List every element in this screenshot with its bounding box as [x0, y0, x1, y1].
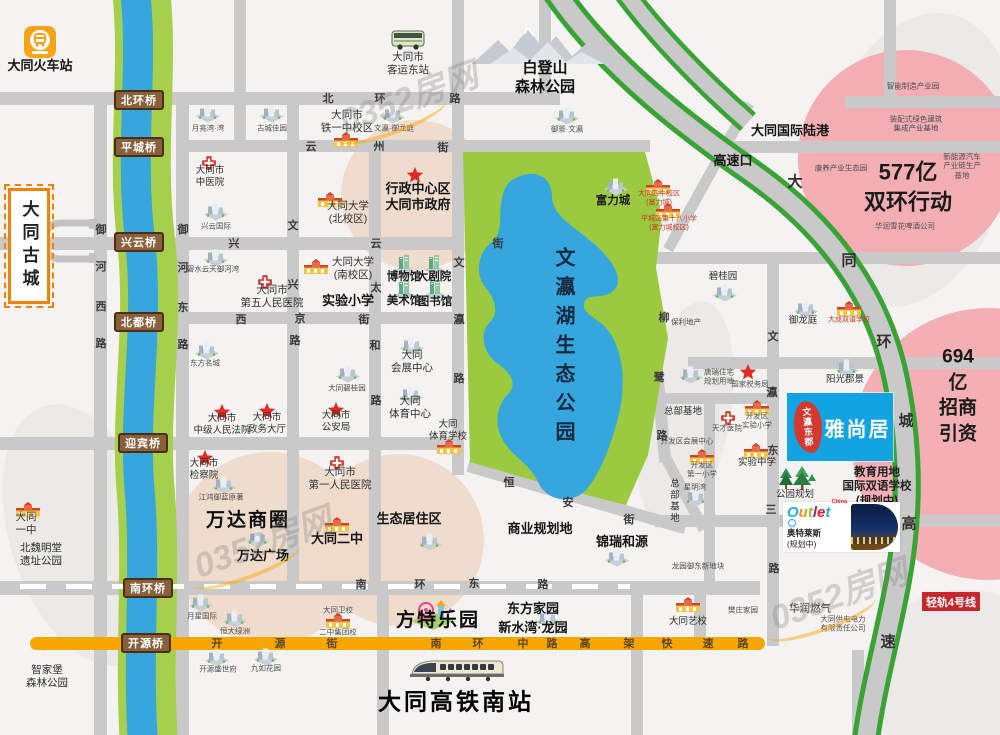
map-label: 碧桂园	[709, 271, 738, 283]
map-label: 东方家园	[507, 601, 559, 617]
map-label: 大成双语学校	[828, 317, 870, 326]
residential-icon	[417, 532, 443, 551]
map-label: 商业规划地	[507, 521, 572, 537]
street-name-char: 路	[769, 560, 780, 576]
bridge-sign: 北环桥	[114, 90, 164, 110]
residential-icon	[188, 593, 214, 612]
residential-icon	[554, 106, 580, 125]
train-icon	[406, 654, 506, 682]
school-icon	[303, 259, 329, 275]
street-name-char: 开	[212, 635, 223, 651]
residential-icon	[194, 341, 220, 360]
map-label: 大同市 第一人民医院	[309, 466, 372, 492]
map-label: 唐瑞住宅 规划用地	[704, 368, 734, 387]
bridge-sign: 开源桥	[121, 633, 171, 653]
map-label: 大同大学 (北校区)	[327, 200, 369, 226]
highway-name-char: 环	[876, 331, 891, 352]
outlet-cn-label: 奥特莱斯	[787, 527, 849, 539]
map-label: 碧水云天御河湾	[187, 264, 240, 273]
bridge-sign: 南环桥	[123, 578, 173, 598]
map-label: 美术馆	[387, 294, 422, 308]
map: 北环桥平城桥兴云桥北都桥迎宾桥南环桥开源桥 北环路云州街兴云街西京街御河西路御河…	[0, 0, 1000, 735]
bus-icon	[391, 29, 425, 51]
school-icon	[675, 597, 701, 613]
map-label: 大同四中校区 (富力城)	[638, 190, 680, 208]
bridge-sign: 迎宾桥	[118, 433, 168, 453]
street-name-char: 街	[624, 511, 635, 527]
map-label: 实验小学	[322, 293, 374, 309]
street-name-char: 东	[768, 442, 779, 458]
residential-icon	[203, 202, 229, 221]
residential-icon	[195, 104, 221, 123]
map-label: 总部基地	[667, 478, 679, 524]
street-name-char: 环	[415, 576, 426, 592]
outlet-status-label: (规划中)	[787, 539, 849, 550]
map-label: 大同 体育中心	[389, 395, 431, 421]
map-label: 694亿 招商引资	[937, 345, 979, 448]
map-label: 开发区 第一小学	[687, 461, 717, 480]
residential-icon	[603, 177, 629, 196]
map-label: 江鸿御蓝原著	[199, 492, 244, 501]
map-label: 大同碧桂园	[328, 383, 366, 392]
map-label: 康养产业生态园	[815, 163, 868, 172]
map-label: 实验中学	[738, 457, 776, 469]
street-name-char: 路	[547, 635, 558, 651]
map-label: 大同大学 (南校区)	[332, 256, 374, 282]
street-name-char: 恒	[504, 474, 515, 490]
train-station-icon	[23, 25, 57, 59]
map-label: 北魏明堂 遗址公园	[20, 542, 62, 568]
map-label: 保利地产	[671, 317, 701, 326]
map-label: 樊庄家园	[728, 605, 758, 614]
outlet-brand: ChinaOutlet	[787, 505, 849, 520]
map-label: 方特乐园	[396, 609, 480, 633]
street-name-char: 环	[473, 635, 484, 651]
street-name-char: 路	[96, 335, 107, 351]
map-label: 国家税务局	[731, 379, 769, 388]
yashangju-seal-logo: 文瀛东郡	[792, 400, 824, 454]
bridge-sign: 兴云桥	[114, 232, 164, 252]
street-name-char: 和	[370, 337, 381, 353]
street-name-char: 街	[359, 311, 370, 327]
street-name-char: 路	[290, 332, 301, 348]
map-label: 图书馆	[418, 295, 453, 309]
map-label: 锦瑞和源	[596, 534, 648, 550]
map-label: 御景·文瀛	[551, 124, 584, 133]
street-name-char: 南	[431, 635, 442, 651]
map-label: 大同 体育学校	[429, 419, 467, 443]
residential-icon	[712, 283, 738, 302]
street-name-char: 街	[493, 235, 504, 251]
highway-name-char: 速	[880, 631, 895, 652]
map-label: 龙园御东新地块	[672, 561, 725, 570]
map-label: 行政中心区 大同市政府	[385, 181, 450, 214]
street-name-char: 京	[295, 310, 306, 326]
map-label: 大同高铁南站	[378, 688, 534, 717]
street-name-char: 兴	[229, 235, 240, 251]
map-label: 二中集团校	[319, 627, 357, 636]
map-label: 大同火车站	[7, 58, 72, 74]
map-label: 九如花园	[251, 663, 281, 672]
ancient-city-box: 大同古城	[8, 188, 50, 304]
map-label: 总部基地	[664, 406, 702, 418]
street-name-char: 路	[538, 576, 549, 592]
bridge-sign: 北都桥	[114, 312, 164, 332]
map-label: 富力城	[596, 194, 631, 208]
map-label: 公园规划	[776, 489, 814, 501]
lake-park-name: 文瀛湖生态公园	[549, 247, 578, 450]
map-label: 大同 一中	[16, 511, 37, 537]
map-label: 智能制造产业园	[887, 81, 940, 90]
map-label: 智家堡 森林公园	[26, 664, 68, 690]
map-label: 新能源汽车产业链生产基地	[943, 152, 981, 180]
street-name-char: 路	[371, 392, 382, 408]
residential-icon	[604, 548, 630, 567]
map-label: 大同市 检察院	[190, 458, 219, 482]
street-name-char: 柳	[659, 309, 670, 325]
street-name-char: 街	[327, 635, 338, 651]
map-label: 高速口	[713, 153, 752, 169]
map-label: 恒大绿洲	[220, 626, 250, 635]
map-label: 大同 会展中心	[391, 349, 433, 375]
map-label: 兴云国际	[201, 221, 231, 230]
school-icon	[836, 301, 862, 317]
residential-icon	[259, 104, 285, 123]
map-label: 月亮湾·湾	[192, 123, 225, 132]
street-name-char: 文	[454, 254, 465, 270]
seal-text: 文瀛东郡	[800, 407, 816, 448]
map-label: 大同市 中医院	[196, 165, 225, 189]
map-label: 开发区 实验小学	[742, 412, 772, 431]
street-name-char: 中	[518, 635, 529, 651]
map-label: 大同市 第五人民医院	[241, 284, 304, 310]
yashangju-name: 雅尚居	[822, 413, 893, 442]
map-label: 白登山 森林公园	[515, 59, 575, 97]
map-label: 大同市 中级人民法院	[193, 413, 250, 437]
street-name-char: 御	[178, 221, 189, 237]
street-name-char: 文	[288, 217, 299, 233]
map-label: 大同艺校	[669, 616, 707, 628]
map-label: 装配式绿色建筑 集成产业基地	[890, 115, 943, 134]
residential-icon	[222, 609, 248, 628]
street-name-char: 瀛	[454, 311, 465, 327]
map-label: 御龙庭	[789, 315, 818, 327]
street-name-char: 源	[275, 635, 286, 651]
star-icon	[740, 364, 757, 380]
map-label: 大同卫校	[323, 605, 353, 614]
map-label: 生态居住区	[376, 511, 441, 527]
balloon-icon	[788, 519, 796, 527]
outlet-china-label: China	[832, 500, 847, 506]
map-label: 大同市 公安局	[322, 410, 351, 434]
map-label: 新水湾·龙园	[498, 620, 567, 636]
street-name-char: 文	[768, 328, 779, 344]
street-name-char: 东	[178, 299, 189, 315]
map-label: 大同市 政务大厅	[248, 412, 286, 436]
highway-name-char: 城	[898, 410, 913, 431]
bridge-sign: 平城桥	[114, 137, 164, 157]
map-label: 月星国际	[187, 611, 217, 620]
highway-name-char: 同	[841, 250, 856, 271]
map-label: 开源盛世府	[199, 664, 237, 673]
residential-icon	[678, 365, 704, 384]
street-name-char: 安	[563, 494, 574, 510]
street-name-char: 南	[356, 576, 367, 592]
map-label: 天才医院	[712, 423, 742, 432]
street-name-char: 三	[766, 501, 777, 517]
map-label: 阳光郡景	[826, 374, 864, 386]
highway-name-char: 大	[787, 171, 802, 192]
street-name-char: 云	[371, 235, 382, 251]
street-name-char: 西	[236, 311, 247, 327]
street-name-char: 鹭	[654, 369, 665, 385]
ancient-city-label: 大同古城	[17, 200, 42, 292]
street-name-char: 御	[96, 221, 107, 237]
map-label: 大剧院	[417, 270, 452, 284]
street-name-char: 东	[469, 575, 480, 591]
street-name-char: 云	[306, 138, 317, 154]
outlet-planned-box: ChinaOutlet 奥特莱斯 (规划中)	[783, 502, 900, 552]
street-name-char: 路	[178, 336, 189, 352]
street-name-char: 速	[703, 635, 714, 651]
highway-name-char: 高	[901, 513, 916, 534]
map-label: 东方名城	[190, 358, 220, 367]
street-name-char: 河	[96, 258, 107, 274]
map-label: 星明湾	[684, 482, 707, 491]
residential-icon	[335, 364, 361, 383]
street-name-char: 架	[624, 635, 635, 651]
map-label: 大同国际陆港	[751, 123, 829, 139]
street-name-char: 快	[662, 635, 673, 651]
map-label: 开发区会展中心	[661, 436, 714, 445]
street-name-char: 路	[454, 370, 465, 386]
outlet-photo	[851, 504, 898, 550]
street-name-char: 路	[738, 635, 749, 651]
street-name-char: 高	[580, 635, 591, 651]
map-label: 华润雪花啤酒公司	[875, 221, 935, 230]
street-name-char: 街	[438, 139, 449, 155]
yashangju-promo[interactable]: 文瀛东郡 雅尚居	[787, 393, 893, 461]
light-rail-badge: 轻轨4号线	[922, 592, 980, 611]
map-label: 古城佳园	[257, 123, 287, 132]
map-label: 577亿 双环行动	[864, 157, 952, 216]
map-label: 平城区第十八小学 (富力城校区)	[641, 215, 697, 233]
street-name-char: 西	[96, 298, 107, 314]
